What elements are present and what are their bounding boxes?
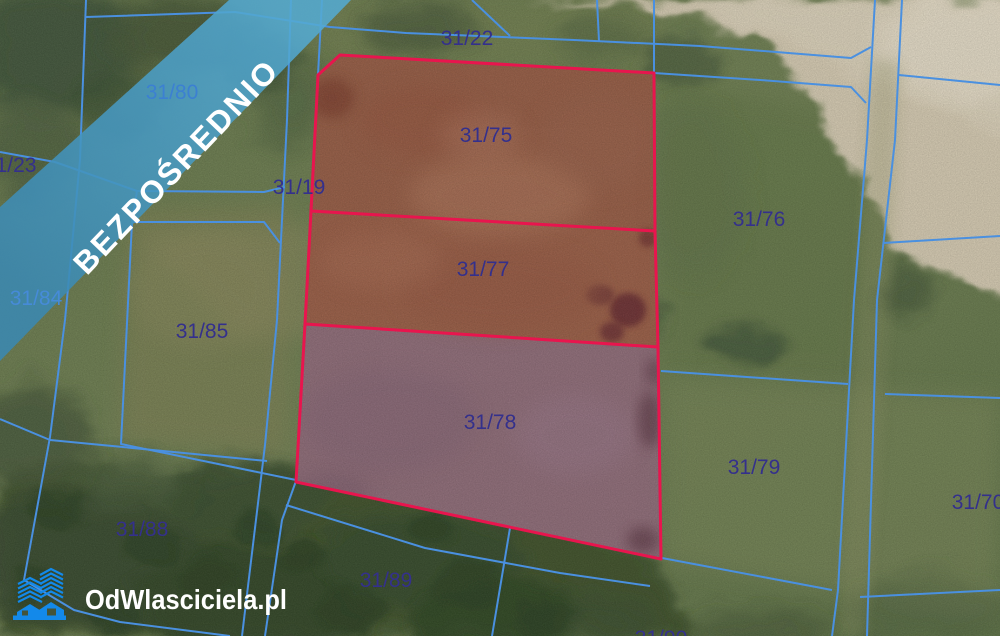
svg-text:31/22: 31/22 <box>441 27 494 50</box>
svg-text:31/88: 31/88 <box>116 518 169 541</box>
svg-text:31/75: 31/75 <box>460 124 513 147</box>
svg-text:31/19: 31/19 <box>273 176 326 199</box>
svg-text:31/84: 31/84 <box>10 287 63 310</box>
svg-text:31/79: 31/79 <box>728 456 781 479</box>
svg-text:31/90: 31/90 <box>635 627 688 636</box>
svg-text:31/80: 31/80 <box>146 81 199 104</box>
svg-text:OdWlasciciela.pl: OdWlasciciela.pl <box>85 584 287 615</box>
svg-text:31/85: 31/85 <box>176 320 229 343</box>
svg-text:31/77: 31/77 <box>457 258 510 281</box>
svg-text:1/23: 1/23 <box>0 154 36 177</box>
svg-text:31/78: 31/78 <box>464 411 517 434</box>
svg-text:31/70: 31/70 <box>952 491 1000 514</box>
svg-text:31/76: 31/76 <box>733 208 786 231</box>
svg-text:31/89: 31/89 <box>360 569 413 592</box>
